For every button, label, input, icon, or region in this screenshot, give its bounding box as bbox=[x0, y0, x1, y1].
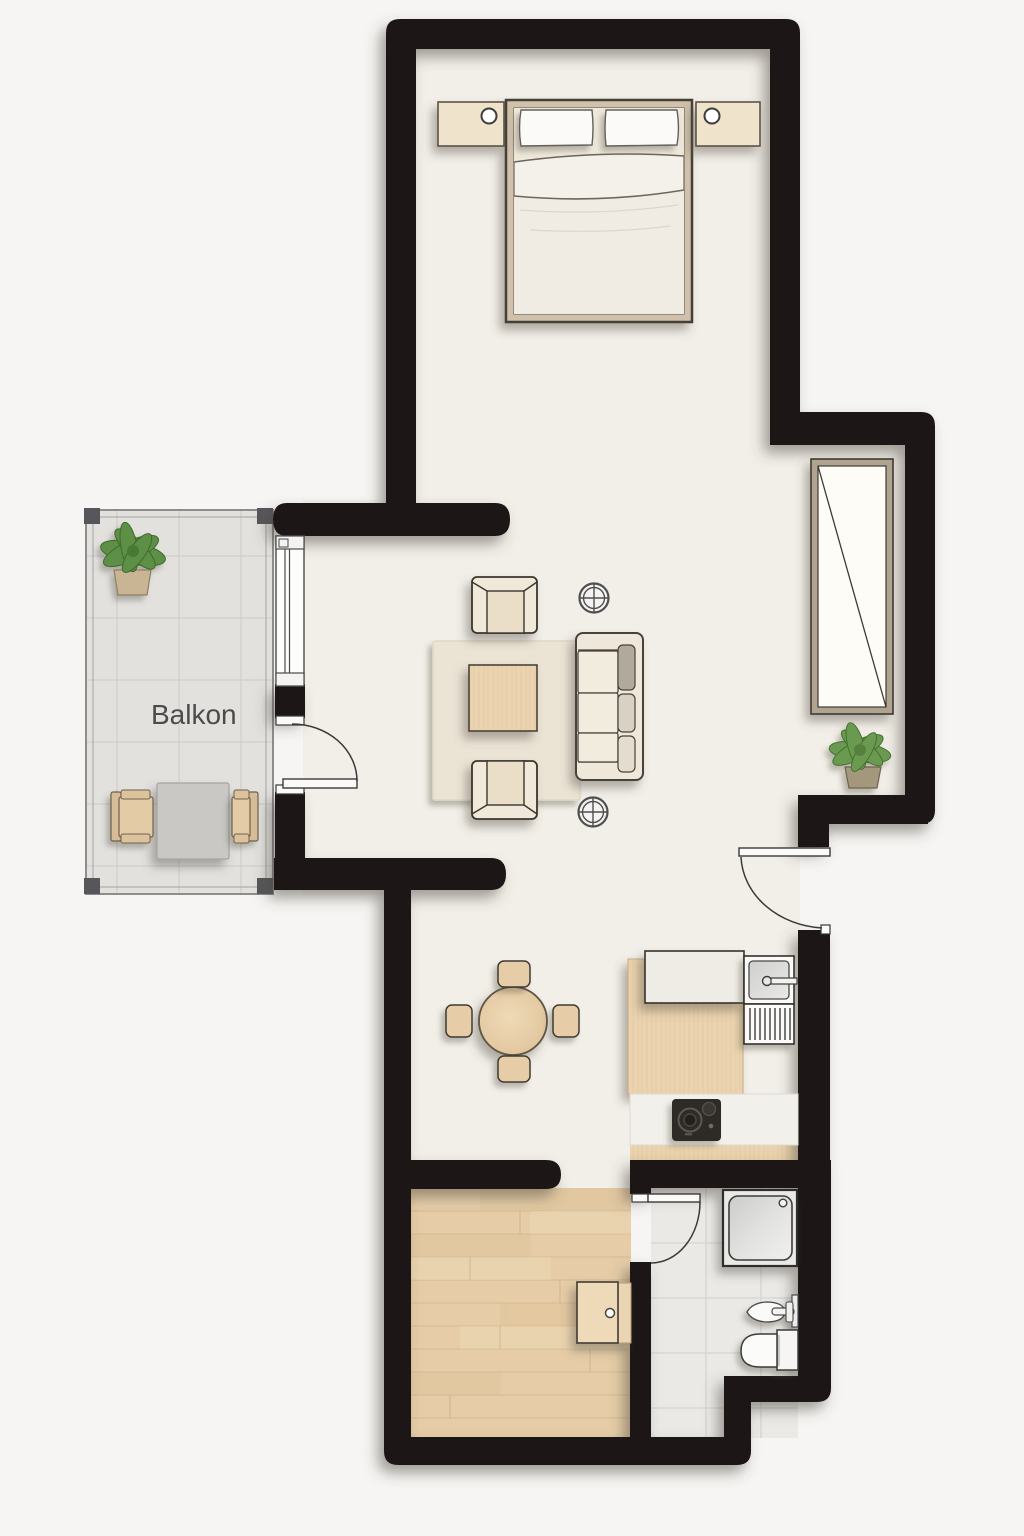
svg-text:Balkon: Balkon bbox=[151, 699, 237, 730]
